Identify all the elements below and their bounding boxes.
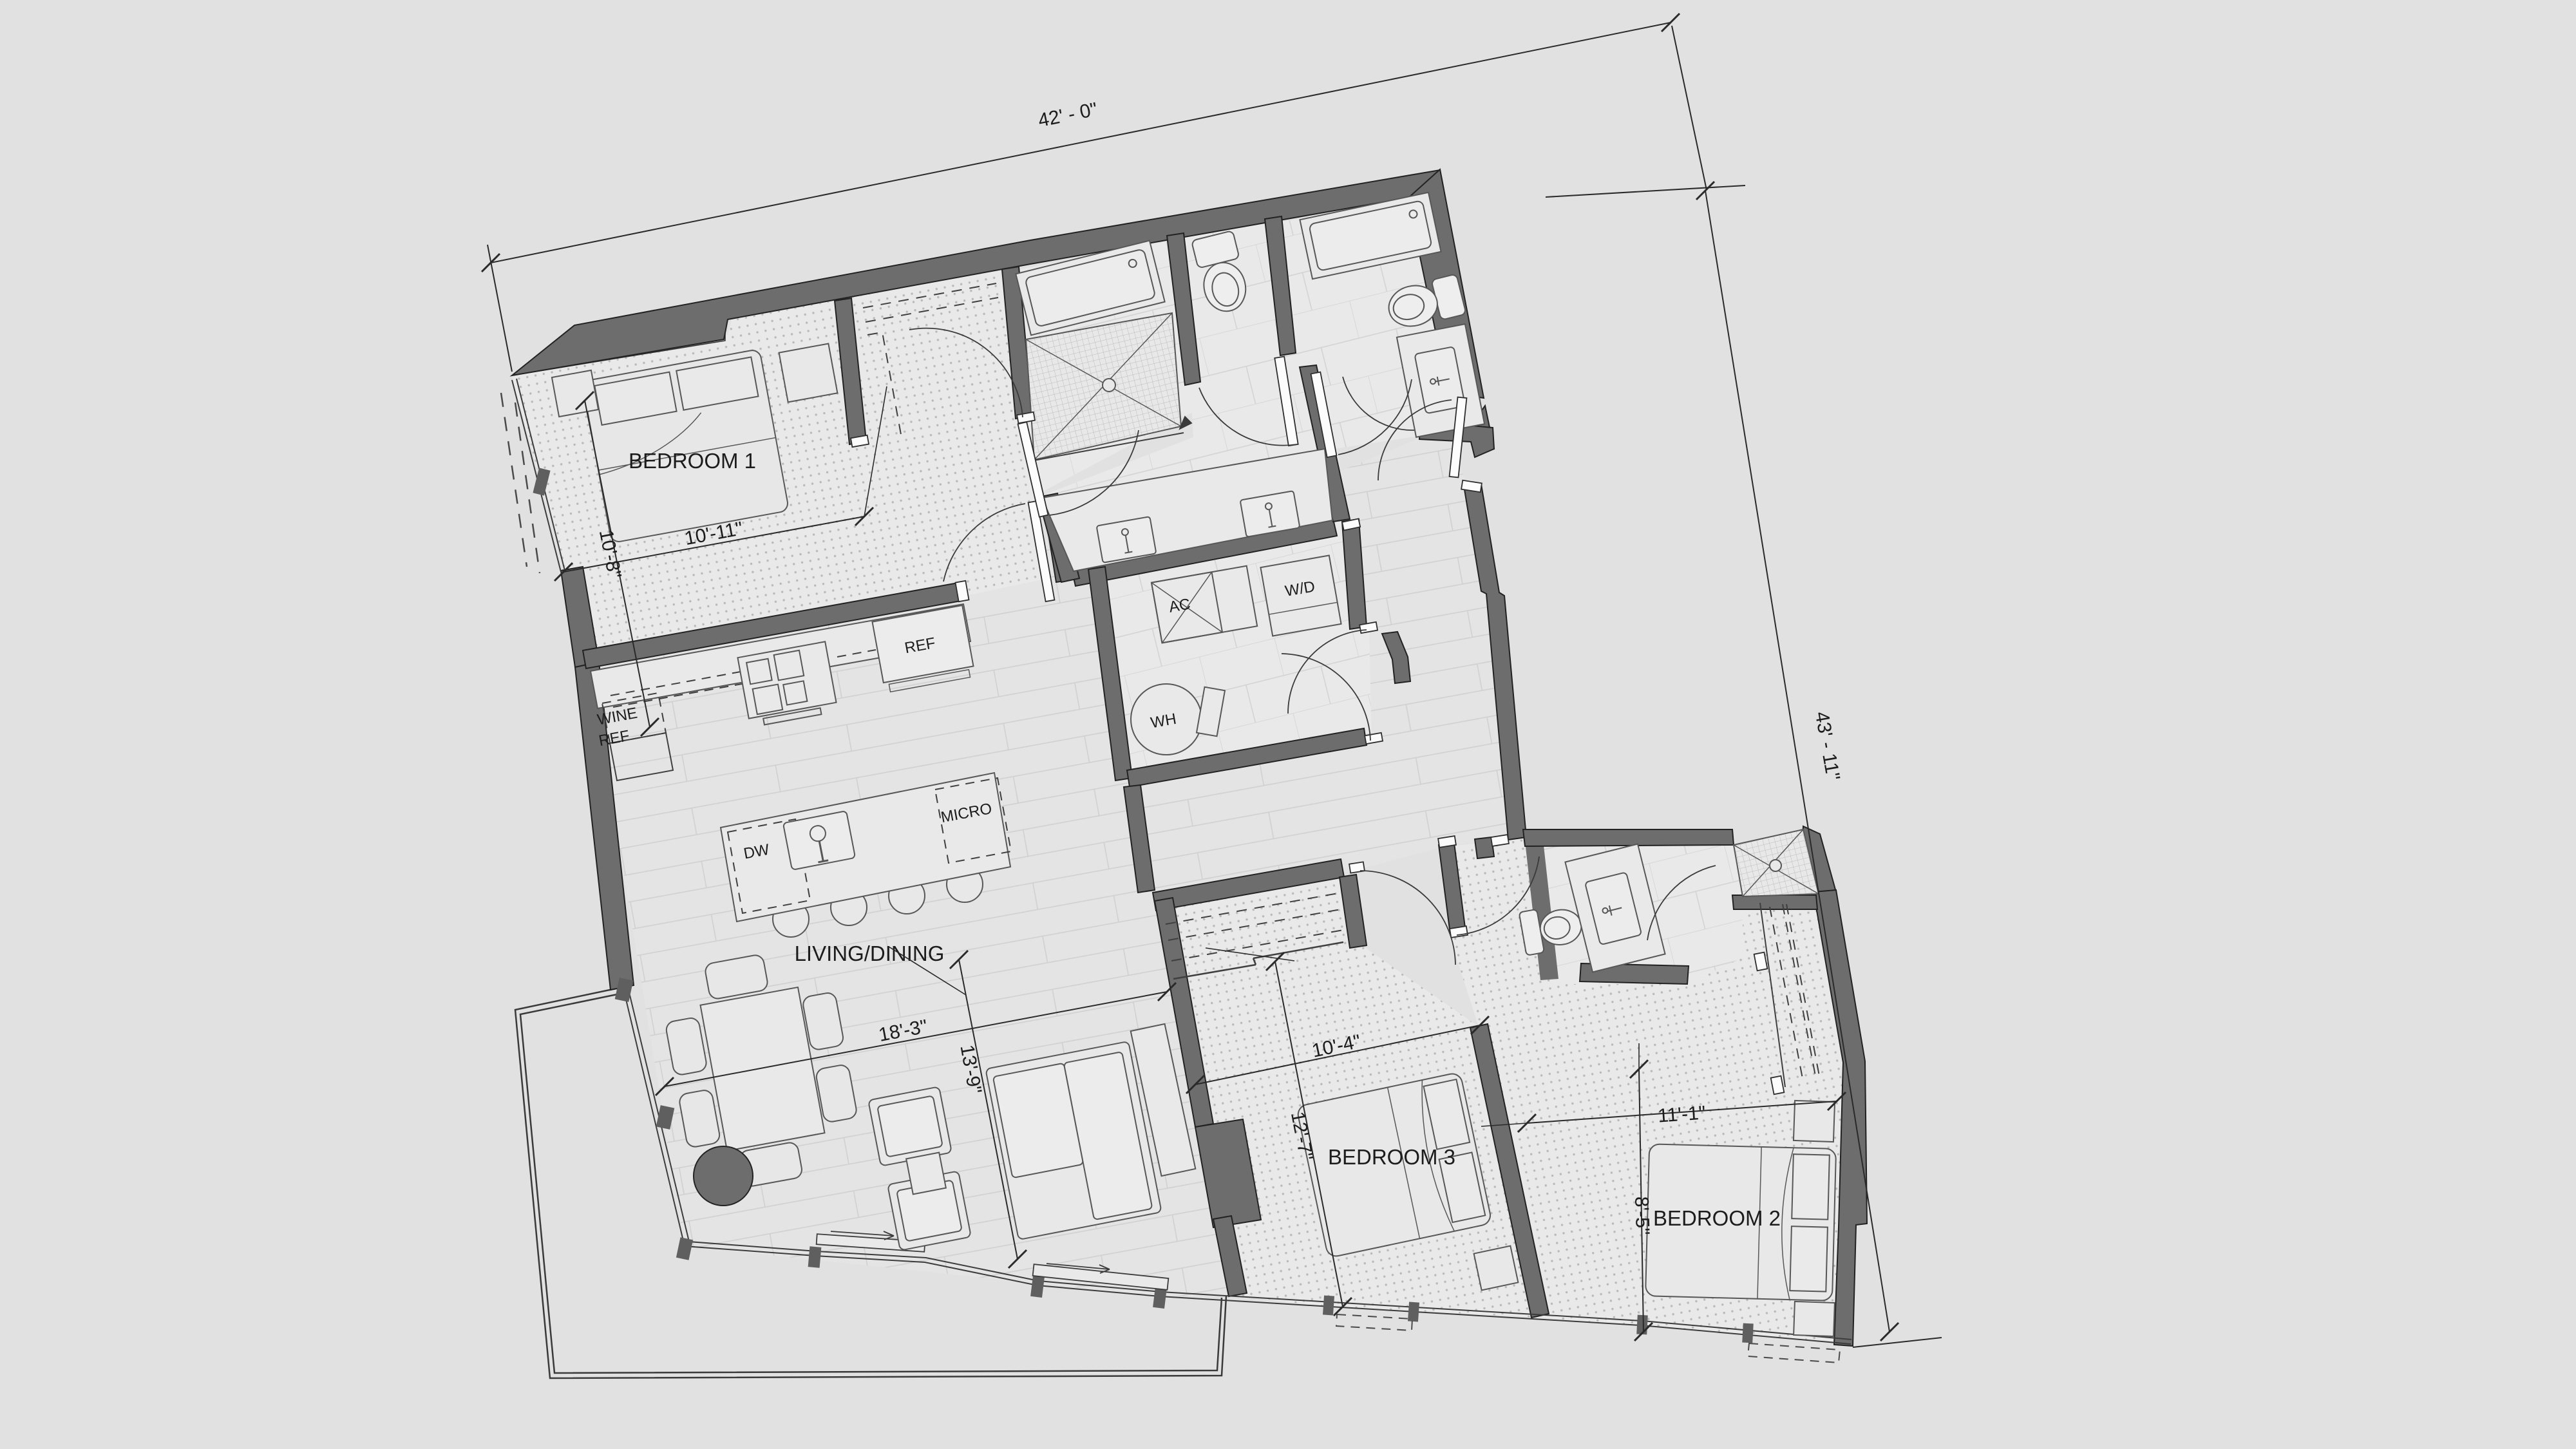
svg-text:11'-1": 11'-1" <box>1657 1102 1706 1126</box>
svg-text:LIVING/DINING: LIVING/DINING <box>795 942 945 965</box>
svg-text:8'-5": 8'-5" <box>1631 1196 1653 1235</box>
svg-text:BEDROOM 1: BEDROOM 1 <box>629 449 756 473</box>
svg-text:AC: AC <box>1168 595 1192 616</box>
svg-text:BEDROOM 2: BEDROOM 2 <box>1653 1206 1781 1230</box>
svg-text:BEDROOM 3: BEDROOM 3 <box>1328 1145 1455 1169</box>
